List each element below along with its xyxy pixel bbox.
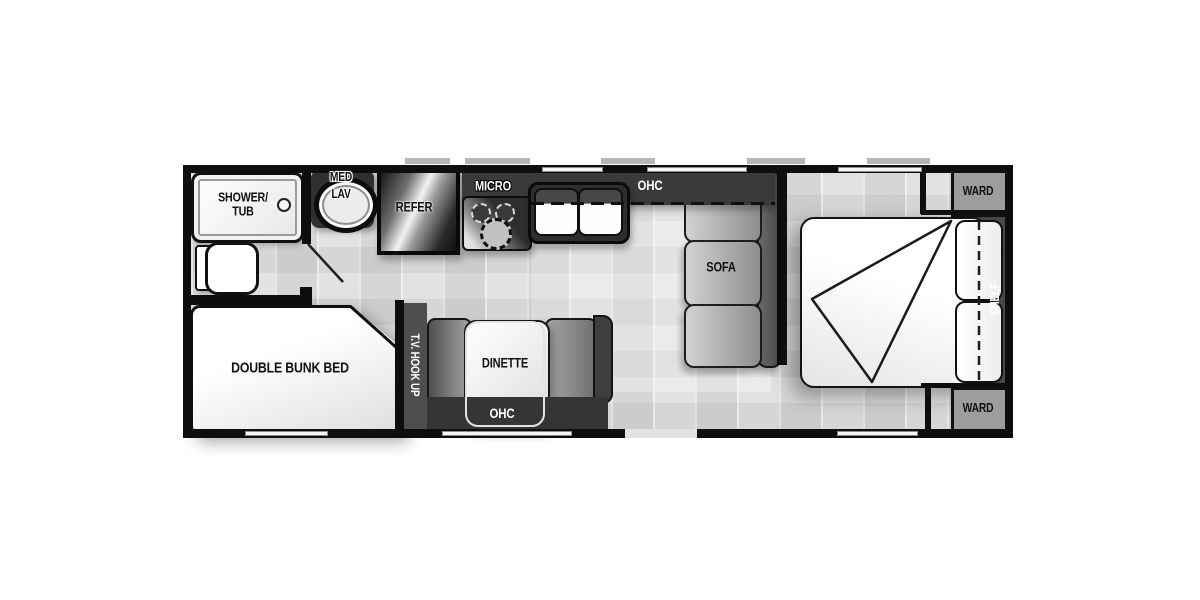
toilet-bowl [205, 242, 259, 295]
dinette-ohc-label: OHC [489, 406, 514, 420]
window [442, 431, 572, 436]
sofa-label: SOFA [706, 260, 735, 274]
roof-marker [465, 158, 530, 164]
tv-hookup-label: T.V. HOOK UP [409, 334, 421, 397]
entry-door-opening [625, 429, 697, 438]
shower-label-line1: SHOWER/ [218, 191, 268, 204]
kitchen-ohc-label: OHC [637, 178, 662, 192]
wardrobe-bottom-label: WARD [963, 402, 994, 415]
bathroom-wall-stub [300, 287, 312, 307]
roof-marker [747, 158, 805, 164]
ward-separator-top [921, 210, 1005, 215]
window [838, 167, 922, 172]
window [245, 431, 328, 436]
shelf-label: SHELF [989, 283, 1002, 316]
med-lav-label-line2: LAV [331, 188, 350, 201]
roof-marker [405, 158, 450, 164]
roof-marker [867, 158, 930, 164]
stove-burner-icon [480, 218, 512, 250]
floorplan-canvas: SHOWER/ TUB MED LAV REFER MICRO OHC SO [0, 0, 1200, 600]
shower-label-line2: TUB [232, 205, 253, 218]
bathroom-wall-vertical [302, 165, 311, 244]
ward-stub-bottom [925, 383, 931, 430]
sofa-cushion [684, 304, 762, 368]
outer-wall-right [1005, 165, 1013, 438]
refrigerator-label: REFER [396, 200, 433, 214]
bedroom-partition-wall [777, 165, 787, 365]
shower-drain-icon [277, 198, 291, 212]
roof-marker [601, 158, 655, 164]
dinette-bench-backrest [593, 315, 613, 404]
sink-basin [534, 188, 579, 236]
med-lav-label-line1: MED [330, 171, 352, 184]
window [542, 167, 603, 172]
outer-wall-left [183, 165, 191, 438]
microwave-label: MICRO [475, 179, 511, 193]
window [647, 167, 747, 172]
bathroom-wall-horizontal [183, 295, 312, 305]
dinette-ohc-band [427, 397, 608, 429]
tv-wall [395, 300, 404, 430]
trailer-floorplan: SHOWER/ TUB MED LAV REFER MICRO OHC SO [183, 165, 1013, 438]
dinette-bench-right [545, 318, 597, 401]
wardrobe-top-label: WARD [963, 185, 994, 198]
double-bunk-bed-label: DOUBLE BUNK BED [231, 361, 349, 376]
med-lav-sink [314, 177, 378, 233]
window [837, 431, 918, 436]
ward-separator-bottom [921, 383, 1005, 388]
dinette-label: DINETTE [482, 356, 528, 370]
sink-basin [578, 188, 623, 236]
